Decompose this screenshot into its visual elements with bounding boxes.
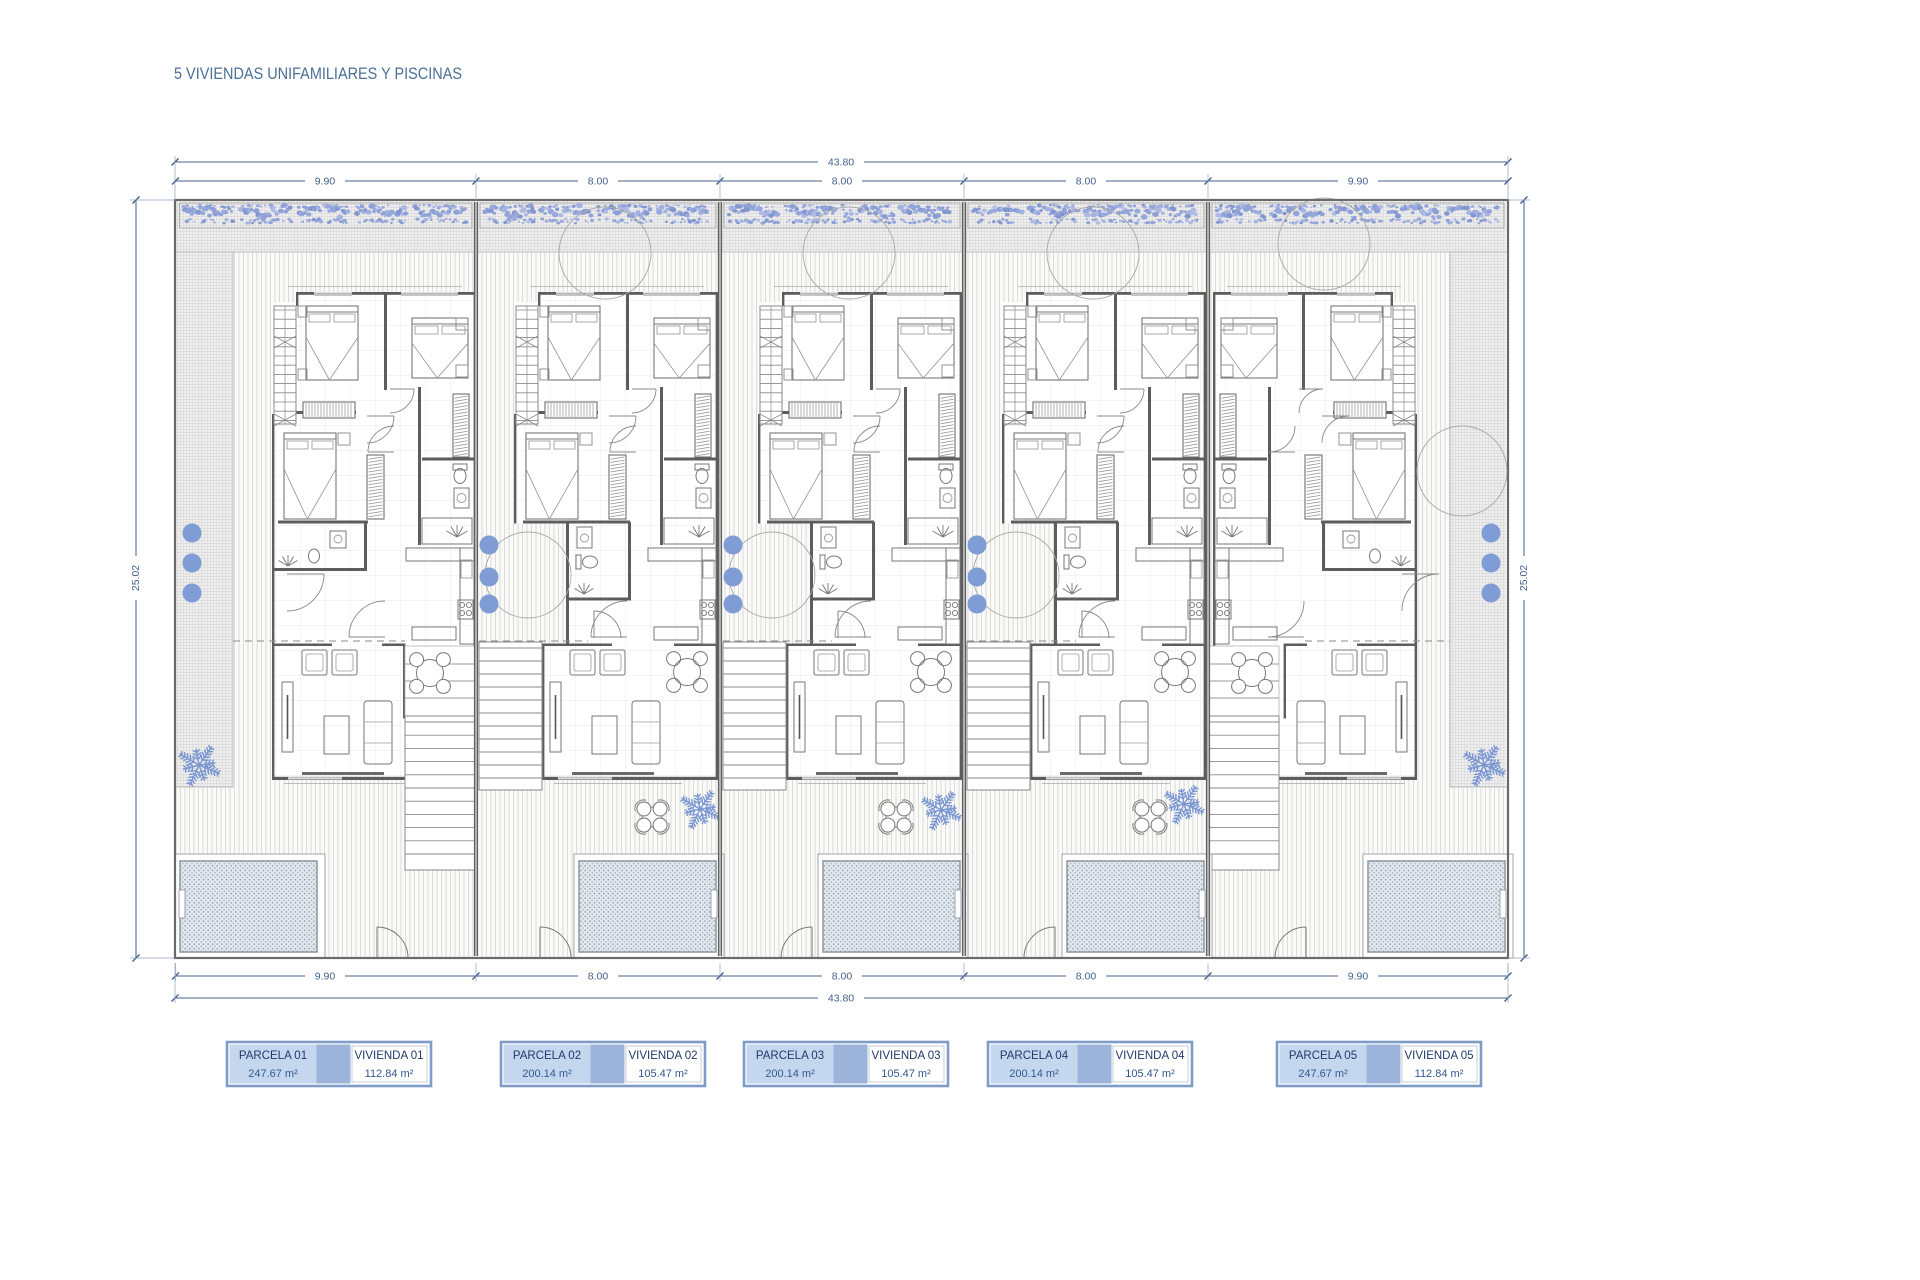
svg-text:105.47 m²: 105.47 m² bbox=[881, 1068, 931, 1080]
svg-text:247.67 m²: 247.67 m² bbox=[248, 1068, 298, 1080]
svg-text:9.90: 9.90 bbox=[315, 176, 336, 188]
svg-text:VIVIENDA 02: VIVIENDA 02 bbox=[628, 1050, 697, 1062]
svg-text:25.02: 25.02 bbox=[130, 565, 142, 591]
svg-text:247.67 m²: 247.67 m² bbox=[1298, 1068, 1348, 1080]
svg-text:8.00: 8.00 bbox=[832, 971, 853, 983]
svg-text:5 VIVIENDAS UNIFAMILIARES Y PI: 5 VIVIENDAS UNIFAMILIARES Y PISCINAS bbox=[174, 65, 462, 83]
svg-text:9.90: 9.90 bbox=[1348, 176, 1369, 188]
svg-text:PARCELA 04: PARCELA 04 bbox=[1000, 1050, 1069, 1062]
svg-text:9.90: 9.90 bbox=[315, 971, 336, 983]
svg-text:8.00: 8.00 bbox=[588, 176, 609, 188]
svg-text:105.47 m²: 105.47 m² bbox=[1125, 1068, 1175, 1080]
svg-text:8.00: 8.00 bbox=[1076, 971, 1097, 983]
svg-text:43.80: 43.80 bbox=[828, 157, 854, 169]
svg-text:8.00: 8.00 bbox=[588, 971, 609, 983]
svg-text:8.00: 8.00 bbox=[1076, 176, 1097, 188]
svg-text:200.14 m²: 200.14 m² bbox=[765, 1068, 815, 1080]
svg-text:9.90: 9.90 bbox=[1348, 971, 1369, 983]
svg-text:VIVIENDA 05: VIVIENDA 05 bbox=[1404, 1050, 1473, 1062]
svg-text:VIVIENDA 04: VIVIENDA 04 bbox=[1115, 1050, 1185, 1062]
svg-text:43.80: 43.80 bbox=[828, 993, 854, 1005]
svg-text:8.00: 8.00 bbox=[832, 176, 853, 188]
svg-text:25.02: 25.02 bbox=[1518, 565, 1530, 591]
svg-text:112.84 m²: 112.84 m² bbox=[1415, 1068, 1464, 1080]
svg-text:PARCELA 03: PARCELA 03 bbox=[756, 1050, 824, 1062]
svg-text:PARCELA 02: PARCELA 02 bbox=[513, 1050, 581, 1062]
svg-text:200.14 m²: 200.14 m² bbox=[522, 1068, 572, 1080]
svg-text:VIVIENDA 01: VIVIENDA 01 bbox=[354, 1050, 423, 1062]
svg-text:105.47 m²: 105.47 m² bbox=[638, 1068, 688, 1080]
svg-text:PARCELA 05: PARCELA 05 bbox=[1289, 1050, 1357, 1062]
svg-text:200.14 m²: 200.14 m² bbox=[1009, 1068, 1059, 1080]
svg-text:VIVIENDA 03: VIVIENDA 03 bbox=[871, 1050, 940, 1062]
svg-text:112.84 m²: 112.84 m² bbox=[365, 1068, 414, 1080]
svg-text:PARCELA 01: PARCELA 01 bbox=[239, 1050, 307, 1062]
